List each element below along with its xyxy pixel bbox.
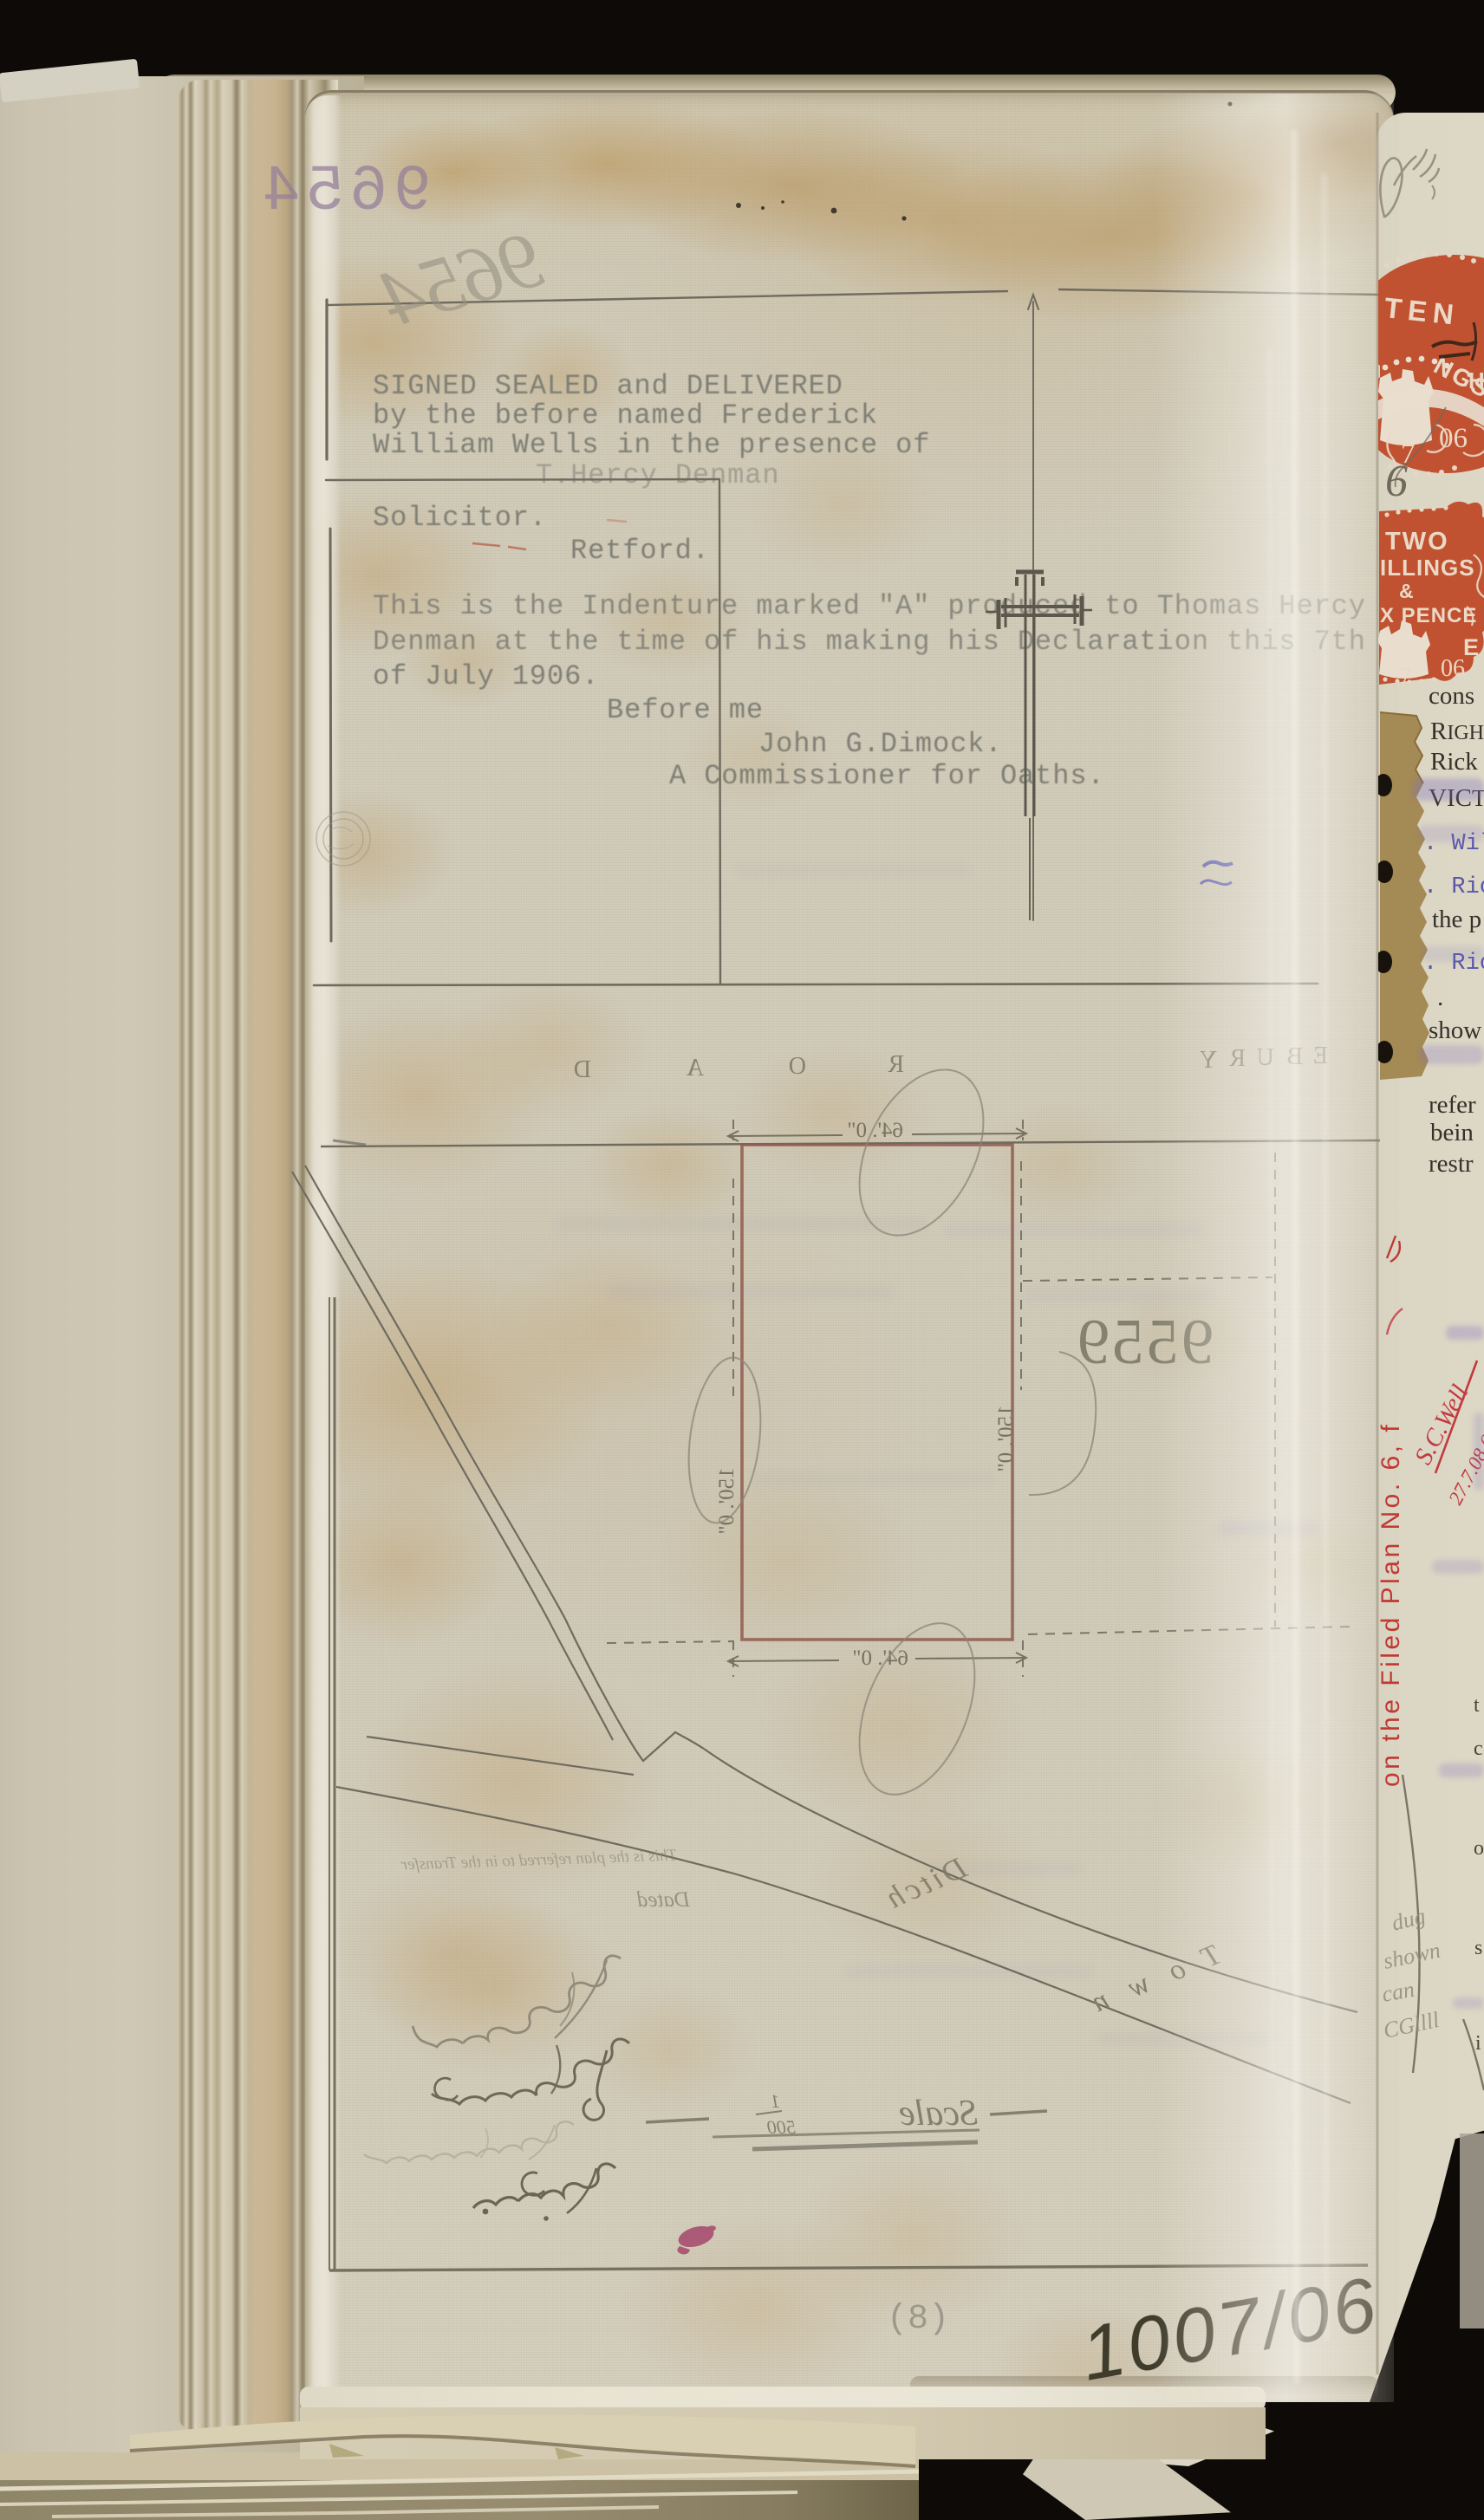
svg-text:Rick: Rick <box>1430 748 1478 776</box>
svg-text:7: 7 <box>1399 664 1411 691</box>
svg-text:. Ric: . Ric <box>1423 874 1484 900</box>
svg-text:.: . <box>1437 984 1443 1011</box>
svg-text:150'. 0": 150'. 0" <box>994 1405 1018 1471</box>
svg-text:O: O <box>789 1053 806 1080</box>
svg-text:cons: cons <box>1429 682 1474 710</box>
svg-text:on the Filed Plan No. 6, f: on the Filed Plan No. 6, f <box>1377 1422 1405 1787</box>
svg-text:Dated: Dated <box>636 1888 691 1912</box>
svg-text:the p: the p <box>1432 906 1481 933</box>
svg-text:R: R <box>888 1051 904 1078</box>
svg-text:i: i <box>1475 2032 1481 2055</box>
svg-text:bein: bein <box>1430 1119 1474 1146</box>
svg-text:9654: 9654 <box>371 213 552 345</box>
svg-text:H: H <box>1468 367 1484 393</box>
svg-text:150'. 0": 150'. 0" <box>715 1467 739 1534</box>
svg-text:64'. 0": 64'. 0" <box>852 1646 908 1670</box>
svg-text:refer: refer <box>1429 1091 1476 1119</box>
svg-text:E: E <box>1463 634 1479 660</box>
svg-text:This is the plan referred to i: This is the plan referred to in the Tran… <box>400 1846 678 1874</box>
svg-text:c: c <box>1474 1737 1483 1760</box>
svg-text:can: can <box>1380 1977 1416 2007</box>
svg-text:t: t <box>1474 1694 1480 1717</box>
svg-text:Ditch: Ditch <box>878 1849 973 1917</box>
svg-text:&: & <box>1399 580 1414 602</box>
svg-text:show: show <box>1429 1016 1481 1044</box>
svg-text:o: o <box>1474 1837 1484 1860</box>
svg-text:D: D <box>574 1056 591 1083</box>
svg-text:06: 06 <box>1441 655 1465 682</box>
svg-text:6: 6 <box>1385 457 1408 506</box>
svg-text:64'. 0": 64'. 0" <box>847 1119 903 1142</box>
svg-text:9654: 9654 <box>257 156 432 229</box>
svg-text:1: 1 <box>771 2090 780 2112</box>
svg-text:s: s <box>1474 1937 1482 1959</box>
svg-text:(8): (8) <box>887 2300 949 2339</box>
svg-text:dug: dug <box>1389 1903 1428 1936</box>
svg-text:X PENCE: X PENCE <box>1380 604 1477 627</box>
svg-text:A: A <box>686 1055 704 1081</box>
svg-text:ILLINGS: ILLINGS <box>1380 555 1475 581</box>
svg-text:TWO: TWO <box>1385 528 1449 555</box>
svg-text:restr: restr <box>1429 1150 1474 1178</box>
svg-text:RIGH: RIGH <box>1430 718 1484 745</box>
svg-text:Scale: Scale <box>899 2094 978 2134</box>
